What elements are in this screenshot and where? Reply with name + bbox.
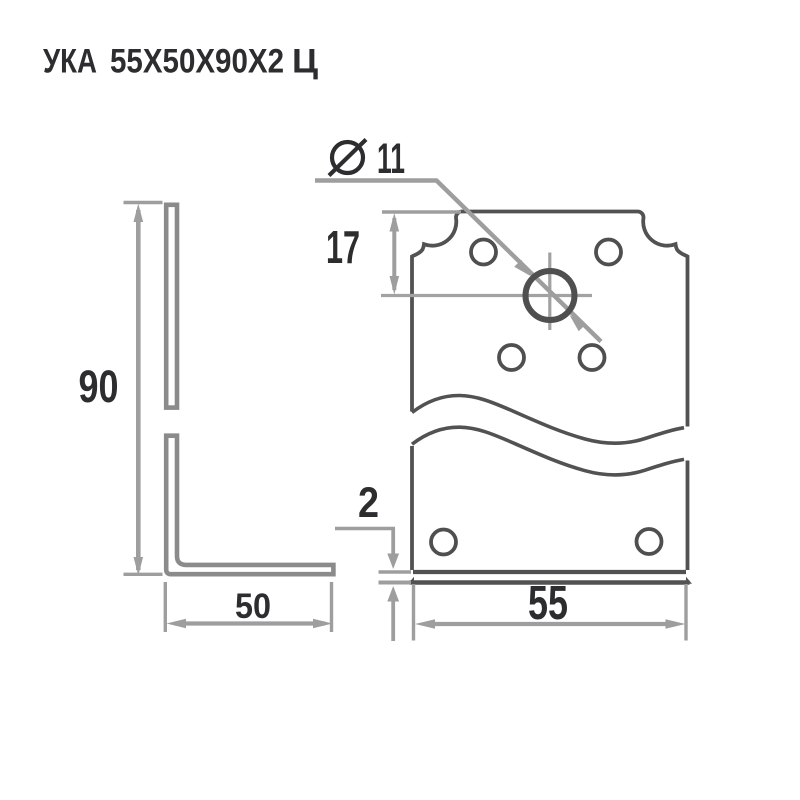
svg-text:2: 2 (358, 479, 379, 527)
svg-text:50: 50 (235, 587, 271, 626)
svg-text:55X50X90X2: 55X50X90X2 (110, 43, 284, 81)
svg-text:11: 11 (377, 135, 405, 183)
svg-text:17: 17 (326, 221, 360, 273)
svg-text:90: 90 (79, 361, 119, 412)
svg-text:55: 55 (528, 577, 568, 630)
svg-text:УКА: УКА (43, 43, 97, 81)
svg-text:Ц: Ц (292, 43, 318, 81)
